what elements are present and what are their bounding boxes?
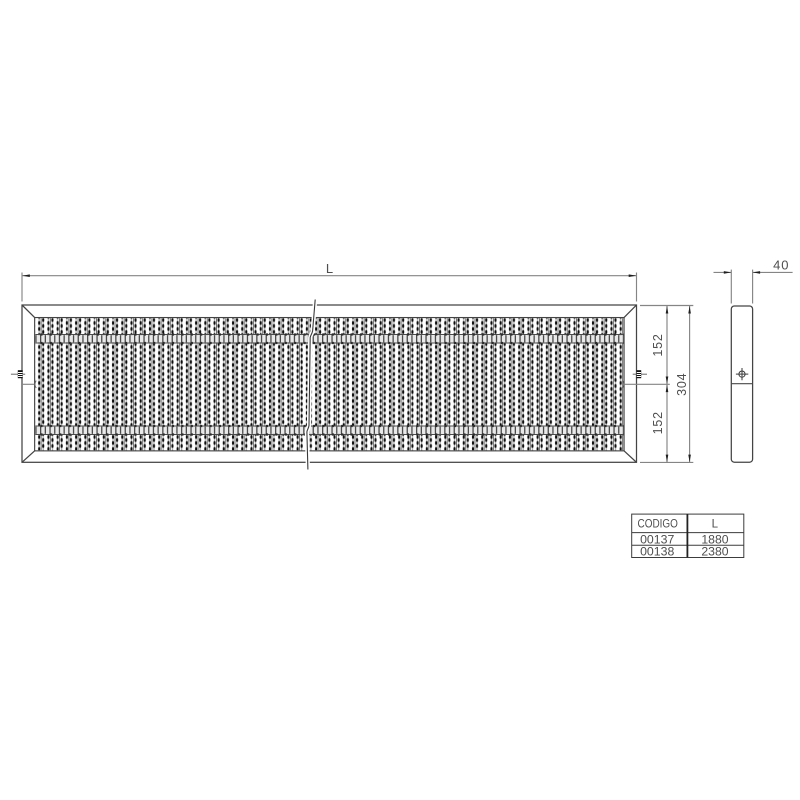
svg-text:L: L [326,261,333,276]
svg-text:152: 152 [651,333,665,356]
svg-text:00137: 00137 [640,534,674,546]
svg-text:00138: 00138 [640,547,674,559]
svg-text:L: L [712,519,719,531]
svg-text:304: 304 [675,373,689,396]
svg-text:152: 152 [651,411,665,434]
svg-text:CODIGO: CODIGO [638,519,678,531]
svg-text:2380: 2380 [701,547,728,559]
svg-text:1880: 1880 [701,534,728,546]
svg-text:40: 40 [773,257,789,272]
